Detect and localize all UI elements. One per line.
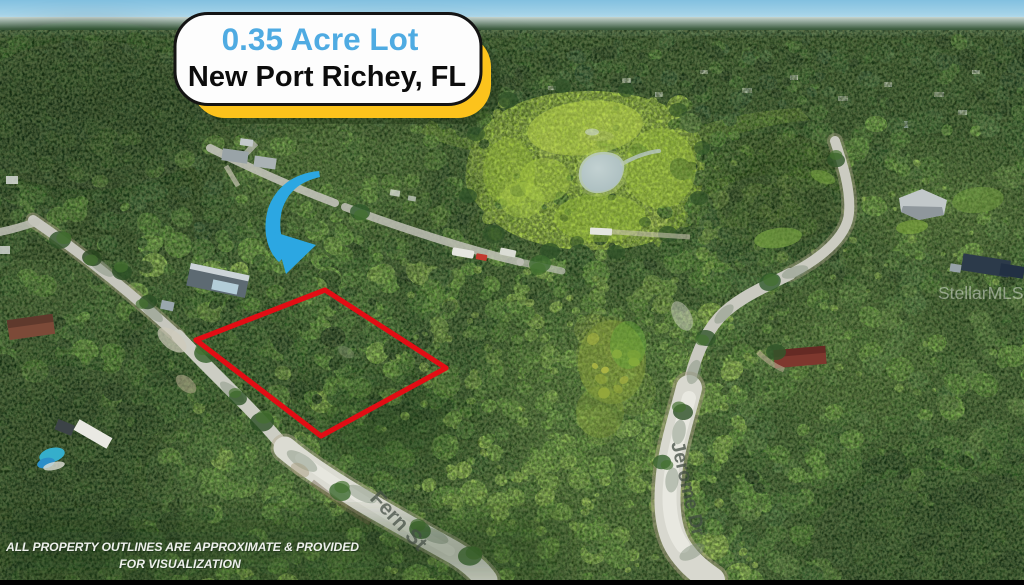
svg-text:FOR VISUALIZATION: FOR VISUALIZATION	[119, 557, 242, 571]
svg-text:StellarMLS: StellarMLS	[938, 283, 1024, 303]
svg-text:ALL PROPERTY OUTLINES ARE APPR: ALL PROPERTY OUTLINES ARE APPROXIMATE & …	[5, 540, 359, 554]
svg-text:0.35 Acre Lot: 0.35 Acre Lot	[222, 21, 419, 57]
svg-text:New Port Richey, FL: New Port Richey, FL	[188, 61, 466, 93]
